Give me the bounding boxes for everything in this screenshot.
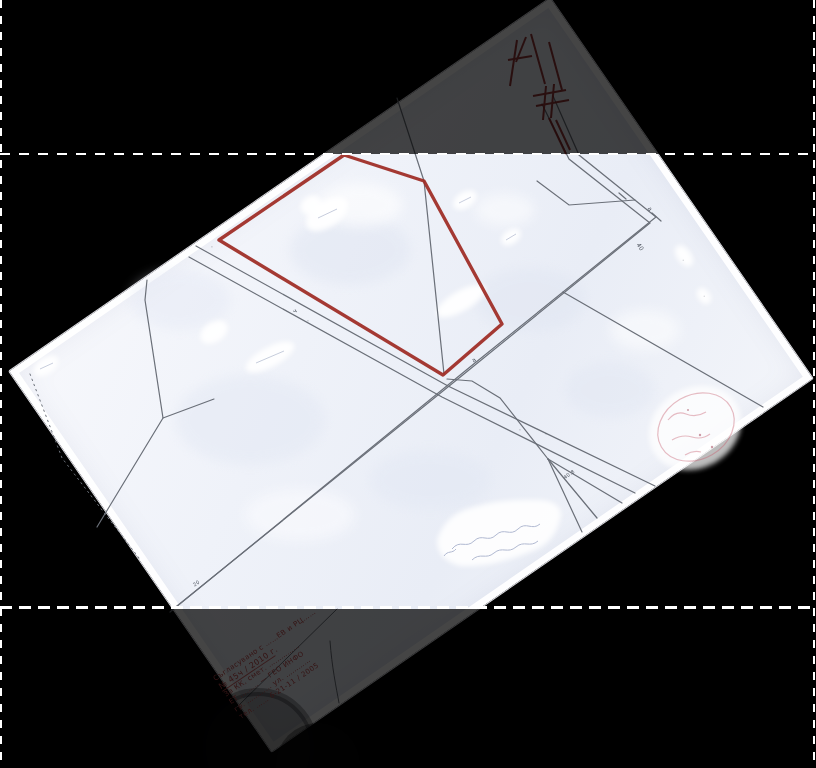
crop-line-right[interactable] — [813, 0, 815, 768]
crop-line-top[interactable] — [0, 153, 816, 155]
crop-line-bottom[interactable] — [0, 606, 816, 609]
crop-line-left[interactable] — [0, 0, 2, 768]
dim-overlay-top — [0, 0, 816, 154]
screenshot-background: 4040.820ач··а···· Съгласувано с ……ЕВ и Р… — [0, 0, 816, 768]
dim-overlay-bottom — [0, 609, 816, 768]
